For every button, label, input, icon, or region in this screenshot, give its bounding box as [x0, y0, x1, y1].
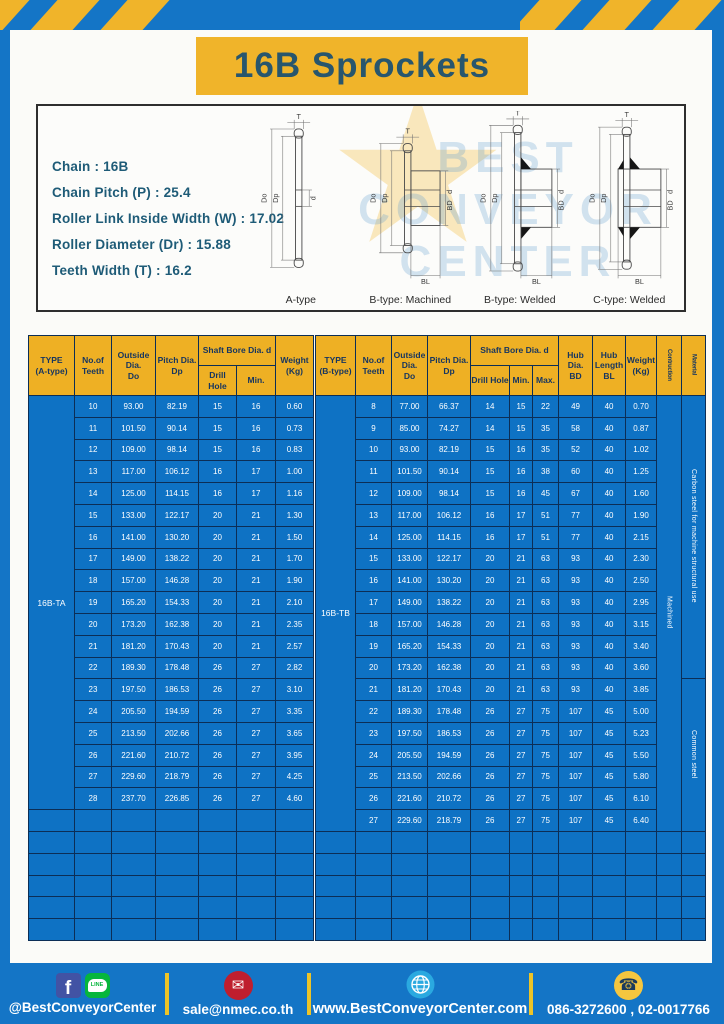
table-cell: 93 [559, 635, 593, 657]
table-cell: 63 [533, 657, 559, 679]
empty-row [29, 875, 314, 897]
header-type: TYPE (A-type) [29, 336, 75, 396]
table-cell: 205.50 [112, 701, 156, 723]
table-cell: 75 [533, 810, 559, 832]
table-cell: 26 [199, 744, 237, 766]
table-cell: 26 [199, 701, 237, 723]
table-row: 16B-TA1093.0082.1915160.60 [29, 396, 314, 418]
table-cell: 77.00 [392, 396, 428, 418]
table-cell: 8 [356, 396, 392, 418]
table-cell: 210.72 [156, 744, 199, 766]
table-cell: 75 [533, 744, 559, 766]
table-cell: 1.90 [276, 570, 314, 592]
table-cell: 24 [356, 744, 392, 766]
table-cell: 0.87 [626, 417, 657, 439]
table-cell: 101.50 [392, 461, 428, 483]
hazard-stripe [0, 0, 35, 30]
table-cell: 40 [593, 504, 626, 526]
hazard-stripe [25, 0, 105, 30]
table-cell: 21 [510, 548, 533, 570]
table-cell: 1.90 [626, 504, 657, 526]
table-cell: 194.59 [156, 701, 199, 723]
table-cell: 226.85 [156, 788, 199, 810]
table-cell: 18 [356, 613, 392, 635]
table-cell [199, 810, 237, 832]
phone-numbers: 086-3272600 , 02-0017766 [547, 1002, 710, 1017]
table-cell [510, 853, 533, 875]
table-cell [199, 831, 237, 853]
table-cell [276, 853, 314, 875]
table-cell: 19 [75, 592, 112, 614]
table-cell: 38 [533, 461, 559, 483]
empty-row [316, 831, 706, 853]
website-url: www.BestConveyorCenter.com [313, 1001, 528, 1017]
table-cell: 13 [356, 504, 392, 526]
diagram-caption: A-type [286, 294, 316, 310]
table-cell: 133.00 [392, 548, 428, 570]
table-cell: 141.00 [112, 526, 156, 548]
table-cell [428, 853, 471, 875]
table-cell: 3.40 [626, 635, 657, 657]
table-cell: 21 [356, 679, 392, 701]
diagram-caption: B-type: Machined [369, 294, 451, 310]
footer-website: www.BestConveyorCenter.com [311, 963, 529, 1024]
svg-text:d: d [666, 190, 675, 194]
empty-row [29, 810, 314, 832]
table-cell: 213.50 [112, 722, 156, 744]
table-cell: 170.43 [428, 679, 471, 701]
table-cell [682, 897, 706, 919]
table-cell: 28 [75, 788, 112, 810]
table-cell: 20 [199, 570, 237, 592]
table-cell: 5.50 [626, 744, 657, 766]
table-cell [533, 831, 559, 853]
header-type: TYPE (B-type) [316, 336, 356, 396]
table-cell: 63 [533, 679, 559, 701]
empty-row [316, 875, 706, 897]
table-cell: 20 [199, 613, 237, 635]
table-row: 15133.00122.1720216393402.30 [316, 548, 706, 570]
table-cell: 3.10 [276, 679, 314, 701]
table-cell [682, 919, 706, 941]
hazard-stripes-right [520, 0, 724, 30]
table-cell: 16 [237, 439, 276, 461]
table-cell: 20 [471, 613, 510, 635]
table-cell [471, 853, 510, 875]
table-cell: 21 [237, 526, 276, 548]
diagram-a-type: dTDoDp A-type [246, 110, 356, 310]
table-cell: 16 [510, 461, 533, 483]
table-cell [112, 831, 156, 853]
table-cell: 77 [559, 504, 593, 526]
table-cell [112, 853, 156, 875]
table-cell: 101.50 [112, 417, 156, 439]
table-cell: 2.30 [626, 548, 657, 570]
table-cell [237, 831, 276, 853]
table-cell: 122.17 [156, 504, 199, 526]
table-cell: 15 [510, 396, 533, 418]
table-cell [156, 919, 199, 941]
table-cell [428, 875, 471, 897]
header-shaft-bore: Shaft Bore Dia. d [471, 336, 559, 366]
table-cell: 17 [237, 461, 276, 483]
table-cell: 162.38 [428, 657, 471, 679]
table-cell: 1.60 [626, 483, 657, 505]
table-cell: 0.60 [276, 396, 314, 418]
table-cell: 58 [559, 417, 593, 439]
table-cell [593, 897, 626, 919]
table-cell: 21 [510, 679, 533, 701]
table-cell [559, 831, 593, 853]
table-cell: 15 [356, 548, 392, 570]
table-cell [112, 897, 156, 919]
email-address: sale@nmec.co.th [183, 1002, 294, 1017]
table-cell [392, 897, 428, 919]
table-cell: 2.57 [276, 635, 314, 657]
table-cell: 14 [471, 396, 510, 418]
table-cell: 26 [471, 766, 510, 788]
header-min: Min. [237, 366, 276, 396]
table-cell [392, 831, 428, 853]
table-cell [392, 853, 428, 875]
table-cell: 26 [471, 810, 510, 832]
table-cell: 35 [533, 439, 559, 461]
svg-text:d: d [556, 190, 565, 194]
table-cell [75, 831, 112, 853]
table-cell: 45 [533, 483, 559, 505]
table-cell: 26 [199, 657, 237, 679]
table-cell: 40 [593, 417, 626, 439]
table-row: 19165.20154.3320216393403.40 [316, 635, 706, 657]
table-cell: 154.33 [156, 592, 199, 614]
table-cell [29, 897, 75, 919]
diagram-b-machined: BLBDdTDoDp B-type: Machined [356, 110, 466, 310]
table-cell: 26 [471, 744, 510, 766]
table-cell: 18 [75, 570, 112, 592]
table-row: 985.0074.2714153558400.87 [316, 417, 706, 439]
empty-row [29, 831, 314, 853]
table-cell: 162.38 [156, 613, 199, 635]
table-cell: 93.00 [392, 439, 428, 461]
sprocket-diagrams: dTDoDp A-type BLBDdTDoDp B-type: Machine… [246, 110, 684, 310]
table-cell: 130.20 [156, 526, 199, 548]
table-cell [276, 897, 314, 919]
table-cell: 107 [559, 766, 593, 788]
table-cell: 117.00 [112, 461, 156, 483]
table-cell: 93 [559, 592, 593, 614]
table-cell: 27 [510, 788, 533, 810]
table-cell [75, 853, 112, 875]
table-cell: 107 [559, 810, 593, 832]
table-cell: 181.20 [112, 635, 156, 657]
table-cell: 63 [533, 613, 559, 635]
table-cell [237, 897, 276, 919]
table-row: 22189.30178.48262775107455.00 [316, 701, 706, 723]
table-cell: 6.40 [626, 810, 657, 832]
table-row: 23197.50186.53262775107455.23 [316, 722, 706, 744]
table-cell: 218.79 [428, 810, 471, 832]
table-cell: 15 [471, 461, 510, 483]
table-cell: 15 [199, 439, 237, 461]
table-cell: 221.60 [112, 744, 156, 766]
empty-row [29, 853, 314, 875]
table-cell [276, 919, 314, 941]
table-cell [593, 853, 626, 875]
header-teeth: No.of Teeth [356, 336, 392, 396]
table-cell: 16 [471, 526, 510, 548]
table-row: 25213.50202.66262775107455.80 [316, 766, 706, 788]
table-cell: 20 [471, 657, 510, 679]
table-cell: 14 [356, 526, 392, 548]
svg-text:T: T [406, 127, 411, 136]
table-cell: 3.15 [626, 613, 657, 635]
svg-text:Do: Do [478, 194, 487, 203]
table-cell: 15 [471, 439, 510, 461]
table-cell: 40 [593, 526, 626, 548]
table-cell: 40 [593, 396, 626, 418]
table-cell: 1.25 [626, 461, 657, 483]
table-cell: 125.00 [112, 483, 156, 505]
table-cell: 170.43 [156, 635, 199, 657]
table-cell: 20 [199, 635, 237, 657]
table-cell: 45 [593, 744, 626, 766]
table-cell: 229.60 [392, 810, 428, 832]
table-cell: 149.00 [112, 548, 156, 570]
catalog-page: 16B Sprockets ★ BEST CONVEYOR CENTER Cha… [0, 0, 724, 1024]
table-cell: 26 [356, 788, 392, 810]
table-cell: 141.00 [392, 570, 428, 592]
table-cell: 107 [559, 701, 593, 723]
table-cell: 205.50 [392, 744, 428, 766]
svg-text:Dp: Dp [271, 194, 280, 203]
table-cell: 106.12 [428, 504, 471, 526]
table-cell: 27 [237, 744, 276, 766]
table-cell: 11 [356, 461, 392, 483]
empty-row [316, 897, 706, 919]
table-cell: 17 [510, 526, 533, 548]
table-cell: 14 [75, 483, 112, 505]
table-cell: 12 [75, 439, 112, 461]
table-cell: 40 [593, 548, 626, 570]
table-cell [392, 875, 428, 897]
page-title: 16B Sprockets [234, 46, 490, 86]
table-cell: 125.00 [392, 526, 428, 548]
table-cell: 109.00 [112, 439, 156, 461]
header-hub-length: Hub Length BL [593, 336, 626, 396]
social-icons: f LINE [56, 973, 110, 998]
table-row: 14125.00114.1516175177402.15 [316, 526, 706, 548]
hazard-stripe [520, 0, 587, 30]
table-cell: 0.83 [276, 439, 314, 461]
table-cell: 20 [199, 592, 237, 614]
table-cell: 93 [559, 657, 593, 679]
empty-row [29, 897, 314, 919]
table-cell [237, 919, 276, 941]
table-cell: 202.66 [428, 766, 471, 788]
table-row: 13117.00106.1216175177401.90 [316, 504, 706, 526]
table-cell [75, 897, 112, 919]
table-cell [626, 875, 657, 897]
table-cell: 20 [471, 570, 510, 592]
table-cell: 15 [199, 417, 237, 439]
table-cell: 109.00 [392, 483, 428, 505]
table-cell: 14 [471, 417, 510, 439]
title-banner: 16B Sprockets [196, 37, 528, 95]
table-cell: 26 [199, 679, 237, 701]
table-cell: 20 [199, 526, 237, 548]
table-cell: 197.50 [112, 679, 156, 701]
diagram-caption: B-type: Welded [484, 294, 556, 310]
table-cell [75, 810, 112, 832]
table-cell: 138.22 [428, 592, 471, 614]
table-row: 27229.60218.79262775107456.40 [316, 810, 706, 832]
table-cell [593, 831, 626, 853]
table-cell: 15 [199, 396, 237, 418]
table-cell [682, 875, 706, 897]
social-handle: @BestConveyorCenter [9, 1000, 156, 1015]
table-cell [237, 875, 276, 897]
header-min: Min. [510, 366, 533, 396]
table-cell: 22 [356, 701, 392, 723]
table-cell [428, 897, 471, 919]
table-cell: 157.00 [392, 613, 428, 635]
table-cell: 130.20 [428, 570, 471, 592]
footer-phone: ☎ 086-3272600 , 02-0017766 [533, 963, 724, 1024]
table-cell [471, 897, 510, 919]
header-construction: Contruction [657, 336, 682, 396]
header-weight: Weight (Kg) [626, 336, 657, 396]
table-cell: 75 [533, 701, 559, 723]
table-cell: 75 [533, 788, 559, 810]
facebook-icon: f [56, 973, 81, 998]
table-cell [156, 897, 199, 919]
table-cell: 197.50 [392, 722, 428, 744]
table-cell: 22 [75, 657, 112, 679]
table-cell: 26 [471, 788, 510, 810]
table-cell: 51 [533, 526, 559, 548]
table-cell: 17 [356, 592, 392, 614]
table-cell: 20 [471, 548, 510, 570]
table-cell: 40 [593, 439, 626, 461]
svg-text:Do: Do [369, 194, 378, 203]
table-cell: 106.12 [156, 461, 199, 483]
table-cell: 1.70 [276, 548, 314, 570]
table-row: 26221.60210.72262775107456.10 [316, 788, 706, 810]
spec-box: ★ BEST CONVEYOR CENTER Chain : 16B Chain… [36, 104, 686, 312]
table-cell: 3.60 [626, 657, 657, 679]
table-cell: 3.95 [276, 744, 314, 766]
table-cell: 133.00 [112, 504, 156, 526]
table-cell: 93 [559, 679, 593, 701]
table-cell: 11 [75, 417, 112, 439]
table-cell: 40 [593, 657, 626, 679]
table-cell: 27 [510, 810, 533, 832]
svg-text:BL: BL [421, 277, 430, 286]
table-row: 12109.0098.1415164567401.60 [316, 483, 706, 505]
table-cell: 20 [199, 548, 237, 570]
table-cell: 3.35 [276, 701, 314, 723]
table-cell: 75 [533, 766, 559, 788]
header-drill-hole: Drill Hole [471, 366, 510, 396]
table-cell: 26 [471, 722, 510, 744]
table-cell [29, 919, 75, 941]
table-cell: 15 [75, 504, 112, 526]
table-cell: 63 [533, 592, 559, 614]
table-cell: 93.00 [112, 396, 156, 418]
header-shaft-bore: Shaft Bore Dia. d [199, 336, 276, 366]
table-cell [471, 919, 510, 941]
table-cell: 45 [593, 810, 626, 832]
table-cell: 16 [510, 483, 533, 505]
table-cell: 1.00 [276, 461, 314, 483]
table-cell [657, 831, 682, 853]
table-row: 17149.00138.2220216393402.95 [316, 592, 706, 614]
table-cell: 117.00 [392, 504, 428, 526]
table-cell [657, 875, 682, 897]
table-cell: 20 [471, 679, 510, 701]
table-cell: 63 [533, 548, 559, 570]
table-cell: 165.20 [112, 592, 156, 614]
table-cell [533, 897, 559, 919]
footer: f LINE @BestConveyorCenter ✉ sale@nmec.c… [0, 963, 724, 1024]
table-cell: 40 [593, 635, 626, 657]
table-cell: 146.28 [156, 570, 199, 592]
table-cell [593, 919, 626, 941]
table-cell: 13 [75, 461, 112, 483]
table-cell: 20 [471, 635, 510, 657]
table-cell [657, 853, 682, 875]
table-cell: 0.73 [276, 417, 314, 439]
table-cell: 107 [559, 744, 593, 766]
header-pitch-dia: Pitch Dia. Dp [156, 336, 199, 396]
svg-text:d: d [445, 190, 454, 194]
svg-text:Do: Do [588, 194, 597, 203]
table-cell: 21 [510, 592, 533, 614]
table-cell: 27 [237, 679, 276, 701]
table-cell: 221.60 [392, 788, 428, 810]
table-cell [533, 919, 559, 941]
table-cell: 189.30 [112, 657, 156, 679]
table-cell: 5.23 [626, 722, 657, 744]
table-cell: 5.00 [626, 701, 657, 723]
svg-text:BD: BD [556, 200, 565, 210]
table-cell: 22 [533, 396, 559, 418]
table-cell: 146.28 [428, 613, 471, 635]
line-icon: LINE [85, 973, 110, 998]
table-cell: 178.48 [428, 701, 471, 723]
table-cell: 4.25 [276, 766, 314, 788]
table-cell [626, 919, 657, 941]
table-cell [29, 831, 75, 853]
header-drill-hole: Drill Hole [199, 366, 237, 396]
table-cell: 21 [510, 657, 533, 679]
table-cell [533, 853, 559, 875]
table-cell: 3.65 [276, 722, 314, 744]
table-cell: 2.15 [626, 526, 657, 548]
table-cell: 40 [593, 483, 626, 505]
table-cell: 21 [237, 570, 276, 592]
table-cell: 17 [237, 483, 276, 505]
table-cell: 20 [356, 657, 392, 679]
table-cell [392, 919, 428, 941]
table-cell [276, 831, 314, 853]
table-cell: 63 [533, 635, 559, 657]
table-cell: 237.70 [112, 788, 156, 810]
table-cell: 85.00 [392, 417, 428, 439]
table-cell: 21 [510, 570, 533, 592]
table-cell: 16 [199, 483, 237, 505]
table-cell: 27 [510, 701, 533, 723]
